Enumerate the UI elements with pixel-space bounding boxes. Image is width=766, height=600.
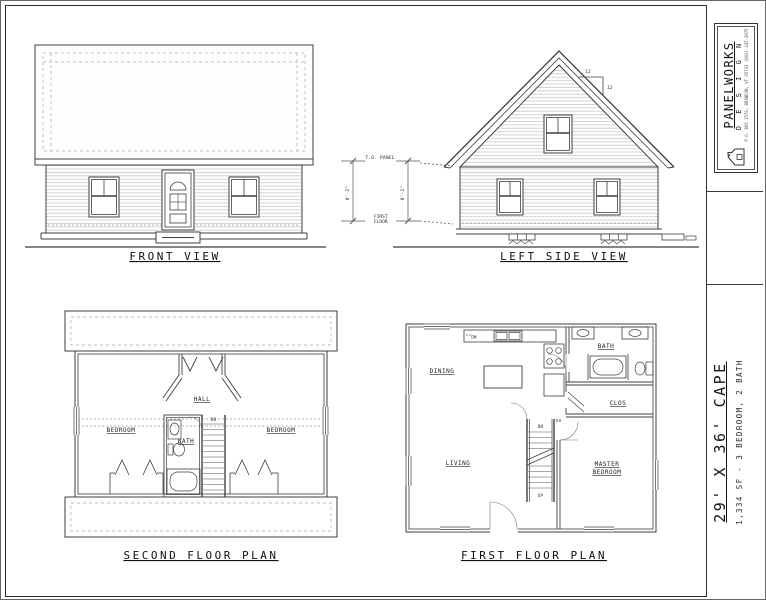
door-swing <box>183 357 197 371</box>
wall-windows <box>405 323 658 532</box>
fascia-board <box>35 159 313 165</box>
second-floor-plan-label: SECOND FLOOR PLAN <box>123 549 278 562</box>
stair-break-line <box>527 453 554 465</box>
plan-name: 29' X 36' CAPE <box>711 294 729 589</box>
front-window-left <box>89 177 119 217</box>
room-label-dining: DINING <box>430 368 455 375</box>
hall-walls <box>163 354 241 401</box>
bathtub-icon <box>167 469 200 494</box>
bathtub-icon <box>588 354 628 380</box>
stairs <box>202 415 225 497</box>
first-floor-plan-label: FIRST FLOOR PLAN <box>461 549 607 562</box>
exterior-walls <box>406 324 656 532</box>
bathroom <box>164 415 202 497</box>
first-floor-plan-drawing: DINING BATH CLOS LIVING MASTER BEDROOM D… <box>394 314 676 570</box>
door-swing <box>490 502 517 529</box>
roof-band-bottom <box>65 497 337 537</box>
stair-up-label: UP <box>538 493 544 498</box>
roof-band-top <box>65 311 337 351</box>
dim-label-top-of-panel: T.O. PANEL <box>365 155 394 161</box>
front-view-label: FRONT VIEW <box>129 250 220 263</box>
vanity-sink-icon <box>572 327 594 339</box>
pitch-run-label: 12 <box>585 69 591 75</box>
vanity-sink-icon <box>622 327 648 339</box>
door-swing <box>511 403 527 419</box>
wall-height-dim-right: 8'-2" <box>400 186 406 201</box>
toilet-icon <box>635 362 653 375</box>
second-floor-plan-drawing: HALL BEDROOM BEDROOM BATH DN SECOND FLOO… <box>53 303 349 571</box>
side-window-right <box>594 179 620 215</box>
front-door <box>162 170 194 230</box>
room-label-hall: HALL <box>194 396 210 403</box>
stove-icon <box>544 344 564 368</box>
room-label-master-line2: BEDROOM <box>593 469 622 476</box>
room-label-bath: BATH <box>178 438 194 445</box>
title-block-strip: PANELWORKS D E S I G N P.O. BOX 1579, BR… <box>706 5 763 597</box>
title-block-divider <box>707 191 763 192</box>
pitch-rise-label: 12 <box>607 85 613 91</box>
front-entry-door <box>490 502 518 533</box>
door-swing <box>209 357 223 371</box>
stair-dn-label: DN <box>538 424 544 429</box>
foundation-and-vents <box>393 229 699 247</box>
house-logo-icon <box>725 146 747 168</box>
room-label-bedroom-right: BEDROOM <box>267 427 296 434</box>
bifold-door <box>568 392 584 406</box>
front-window-right <box>229 177 259 217</box>
refrigerator-icon <box>544 374 564 396</box>
left-side-view-label: LEFT SIDE VIEW <box>500 250 628 263</box>
dishwasher-label: DW <box>471 335 477 340</box>
plan-stats: 1,334 SF - 3 BEDROOM, 2 BATH <box>735 294 744 589</box>
stair-dn-label: DN <box>211 417 217 422</box>
kitchen-sink-icon <box>494 331 522 341</box>
room-label-closet: CLOS <box>610 400 626 407</box>
kitchen-counter <box>464 330 556 342</box>
height-dimensions <box>341 158 453 224</box>
stairs <box>511 403 554 502</box>
blueprint-sheet: FRONT VIEW T.O. PANEL FIRST FLOOR <box>0 0 766 600</box>
left-side-view-drawing: T.O. PANEL FIRST FLOOR 8'-2" 8'-2" <box>329 37 703 265</box>
front-view-drawing: FRONT VIEW <box>23 37 328 265</box>
door-swing <box>548 354 566 372</box>
master-partition-wall <box>557 419 578 529</box>
room-label-bedroom-left: BEDROOM <box>107 427 136 434</box>
side-window-left <box>497 179 523 215</box>
room-label-master-line1: MASTER <box>595 461 620 468</box>
title-block-divider <box>707 284 763 285</box>
company-address: P.O. BOX 1579, BRANDON, VT 05733 (802) 2… <box>745 28 749 141</box>
wall-height-dim-left: 8'-2" <box>345 186 351 201</box>
wall-window-right <box>322 407 329 435</box>
door-swing <box>560 422 578 440</box>
room-label-bath: BATH <box>598 343 614 350</box>
wall-window-left <box>73 407 80 435</box>
bifold-door <box>568 398 584 412</box>
room-label-living: LIVING <box>446 460 471 467</box>
side-wall <box>460 167 658 229</box>
exterior-walls <box>75 351 327 497</box>
foundation-and-steps <box>25 232 326 247</box>
bath-fixtures <box>572 327 653 380</box>
sink-icon <box>168 420 181 439</box>
kitchen-island <box>484 366 522 388</box>
company-logo-box: PANELWORKS D E S I G N P.O. BOX 1579, BR… <box>714 23 758 173</box>
gable-window <box>544 115 572 153</box>
dim-label-first-floor-line2: FLOOR <box>374 219 388 225</box>
company-tagline: D E S I G N <box>736 28 744 141</box>
plan-title-section: 29' X 36' CAPE 1,334 SF - 3 BEDROOM, 2 B… <box>707 288 763 595</box>
stair-break-line <box>527 448 554 460</box>
